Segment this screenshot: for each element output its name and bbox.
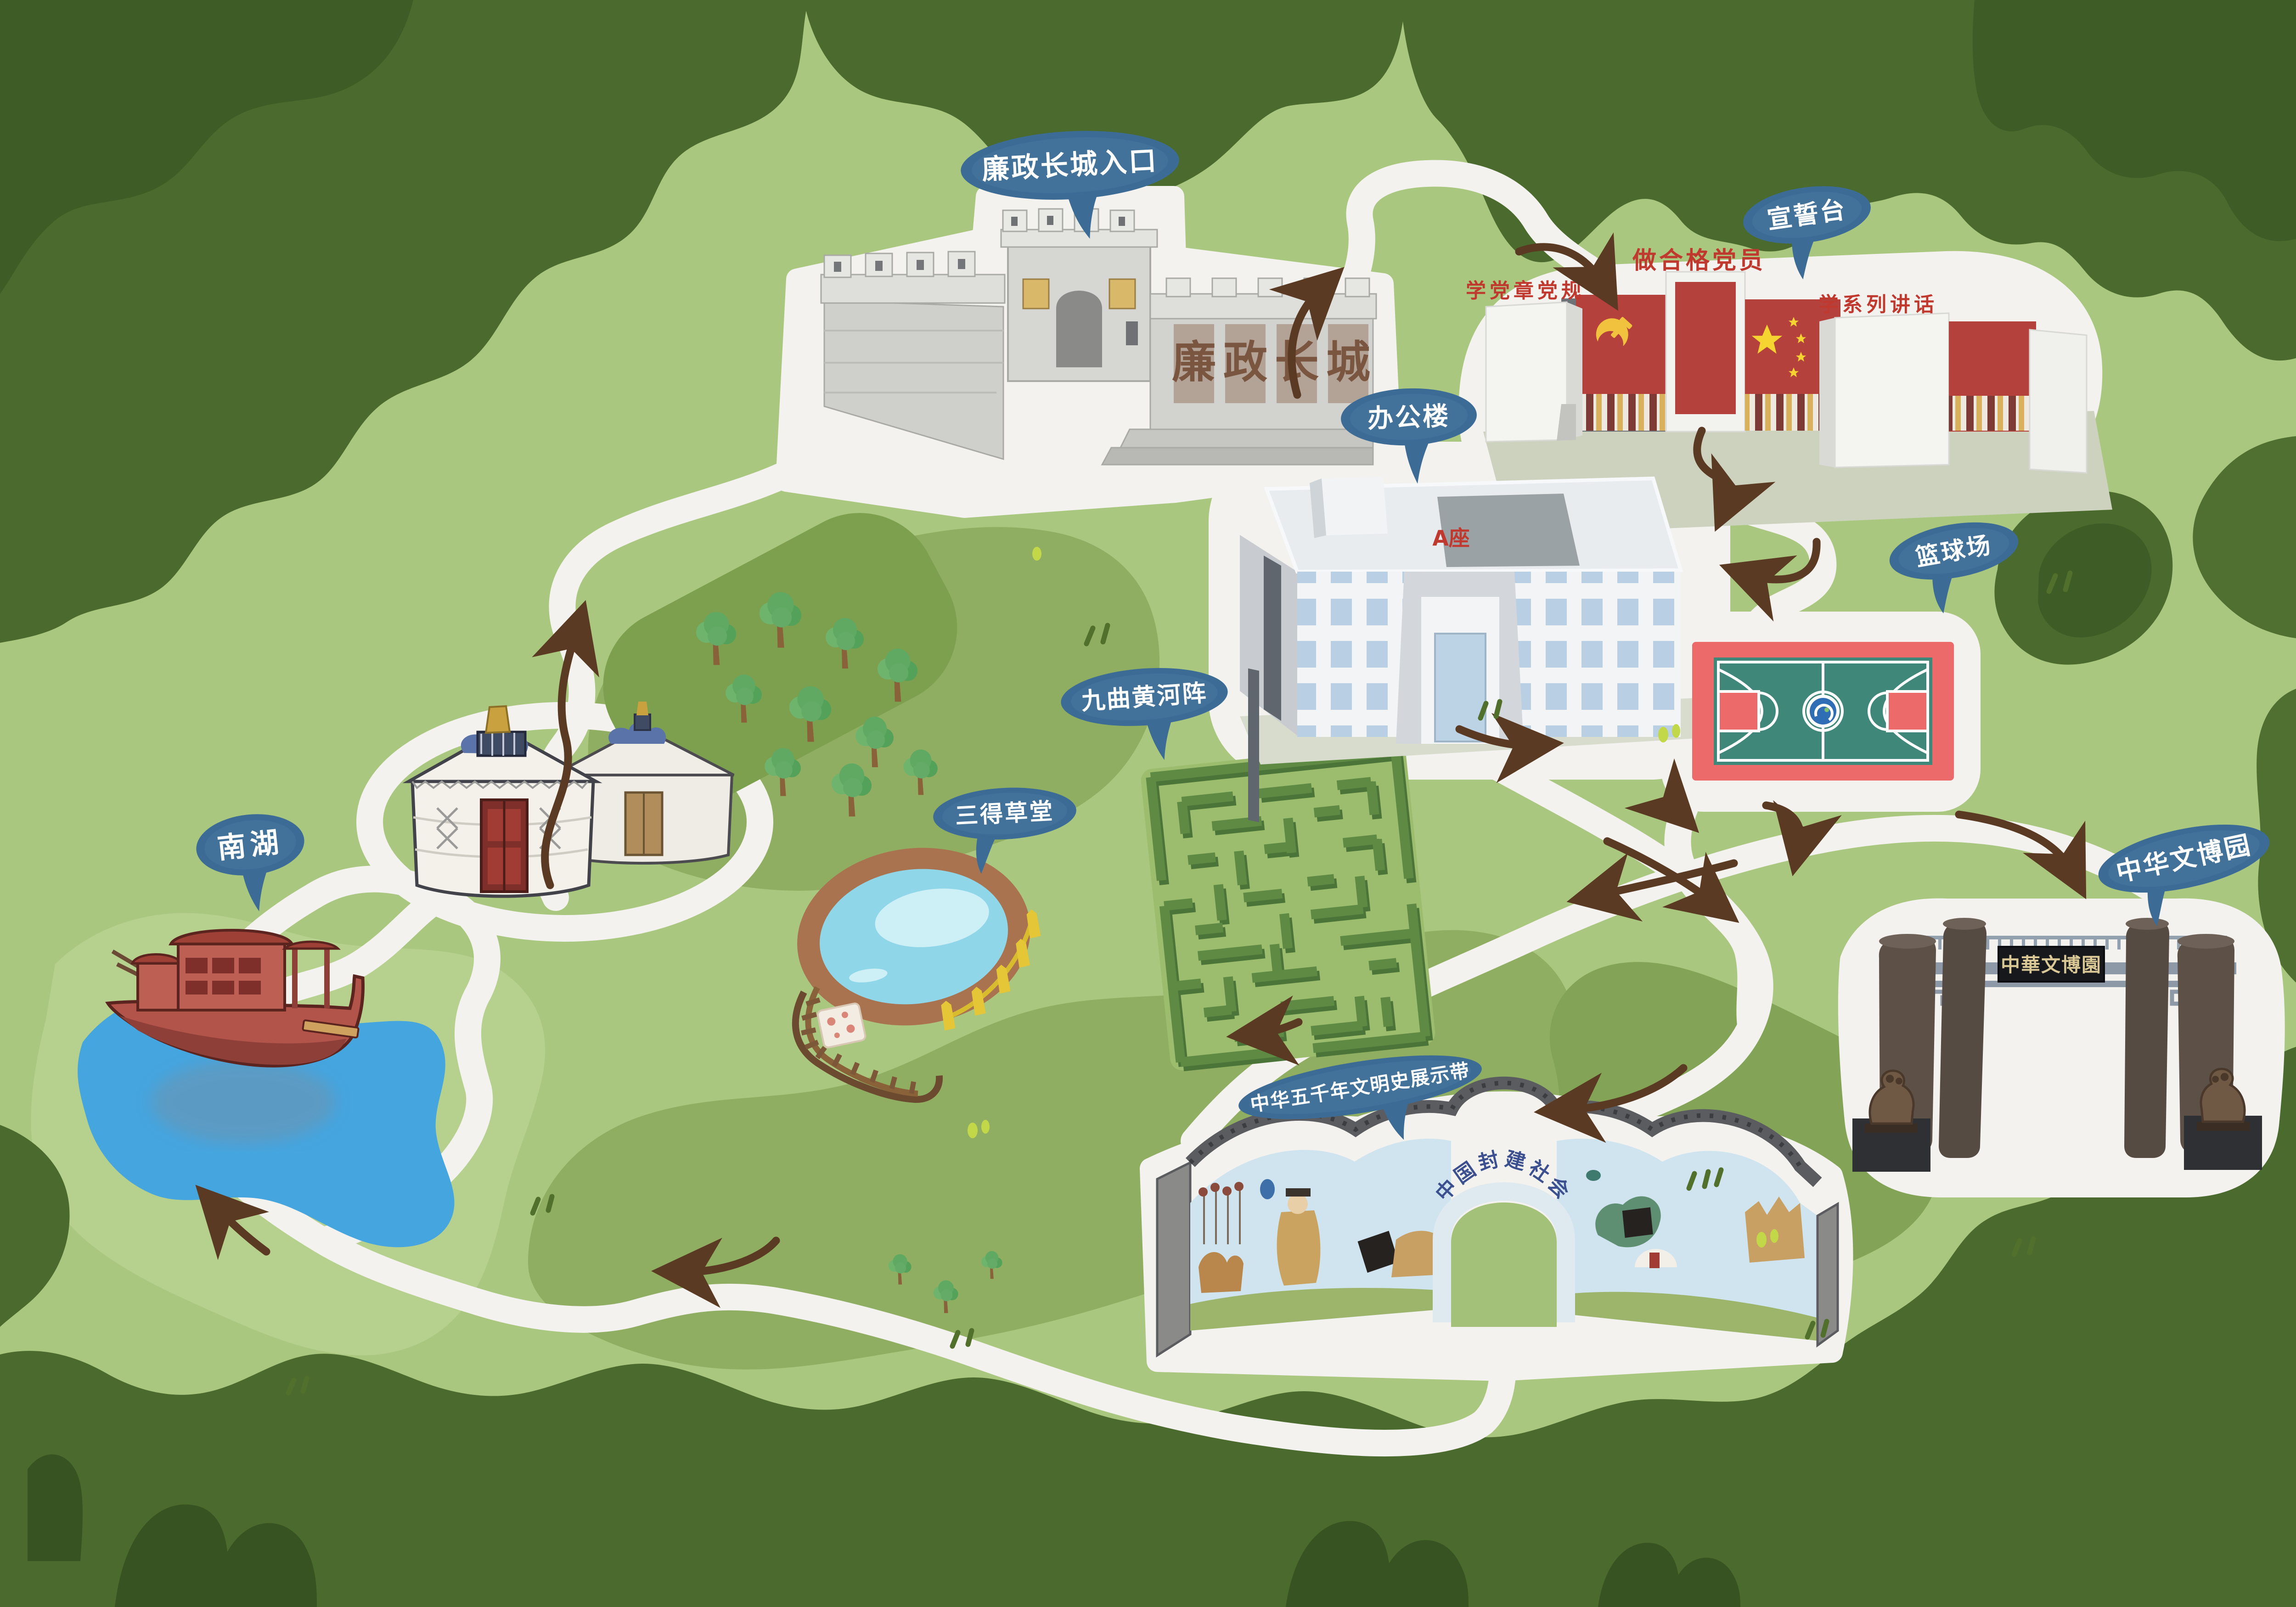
hedge-maze bbox=[1140, 742, 1436, 1071]
wall-tower bbox=[1001, 209, 1157, 381]
wall-char-4: 城 bbox=[1326, 337, 1370, 388]
park-map: 廉 政 长 城 bbox=[0, 0, 2296, 1607]
oath-right-sign: 学系列讲话 bbox=[1818, 293, 1938, 316]
wall-char-2: 政 bbox=[1223, 337, 1267, 388]
oath-left-block bbox=[1486, 302, 1582, 442]
svg-text:三得草堂: 三得草堂 bbox=[955, 798, 1055, 829]
oath-panel-emblem bbox=[1576, 295, 1671, 431]
office-block-sign: A座 bbox=[1432, 526, 1470, 551]
mural-arch bbox=[1442, 1191, 1566, 1327]
oath-left-sign: 学党章党规 bbox=[1466, 279, 1585, 303]
oath-center-sign: 做合格党员 bbox=[1632, 247, 1766, 275]
oath-center-tower bbox=[1666, 272, 1745, 432]
office-entrance bbox=[1396, 572, 1524, 744]
oath-right-block bbox=[1819, 313, 1949, 467]
boat-reflection bbox=[152, 1061, 335, 1143]
basketball-court bbox=[1692, 642, 1954, 781]
court-logo-icon bbox=[1806, 695, 1840, 728]
wall-char-1: 廉 bbox=[1172, 337, 1216, 388]
svg-text:南湖: 南湖 bbox=[216, 825, 285, 865]
gate-plaque-sign: 中華文博園 bbox=[2001, 954, 2102, 976]
svg-text:办公楼: 办公楼 bbox=[1367, 401, 1451, 434]
